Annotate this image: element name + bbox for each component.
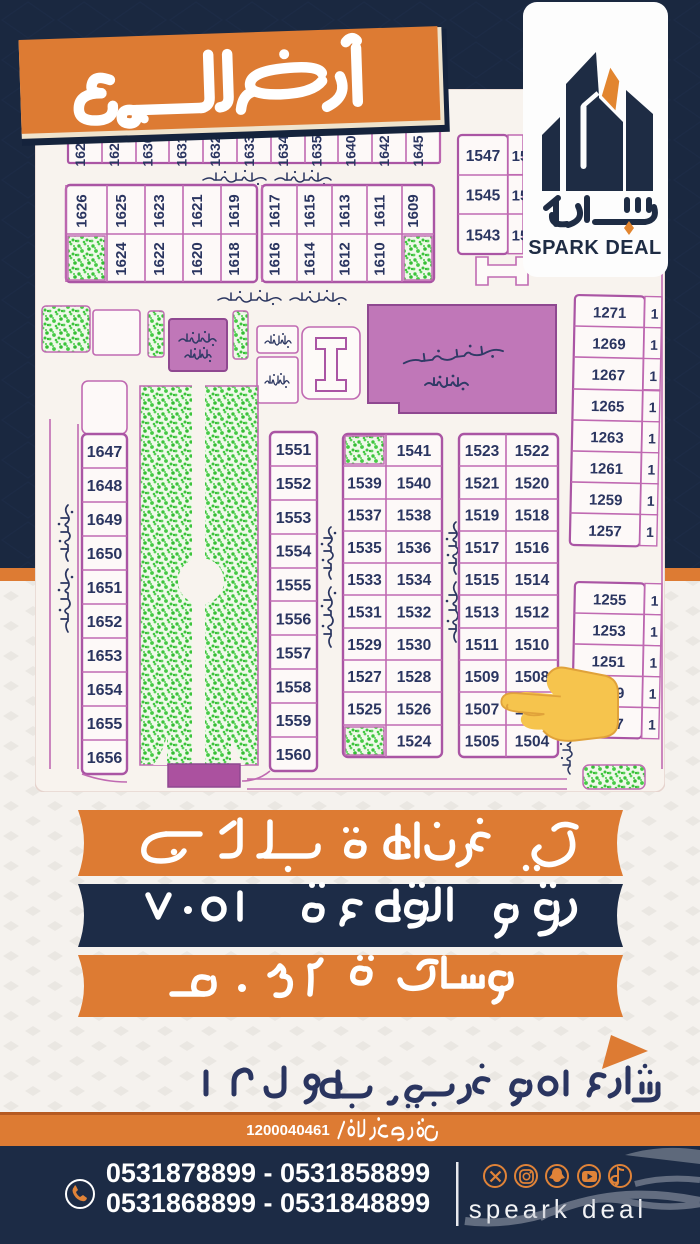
svg-text:0531868899 - 0531848899: 0531868899 - 0531848899 bbox=[106, 1188, 430, 1218]
svg-text:0531878899 - 0531858899: 0531878899 - 0531858899 bbox=[106, 1158, 430, 1188]
svg-text:1200040461: 1200040461 bbox=[246, 1122, 329, 1139]
